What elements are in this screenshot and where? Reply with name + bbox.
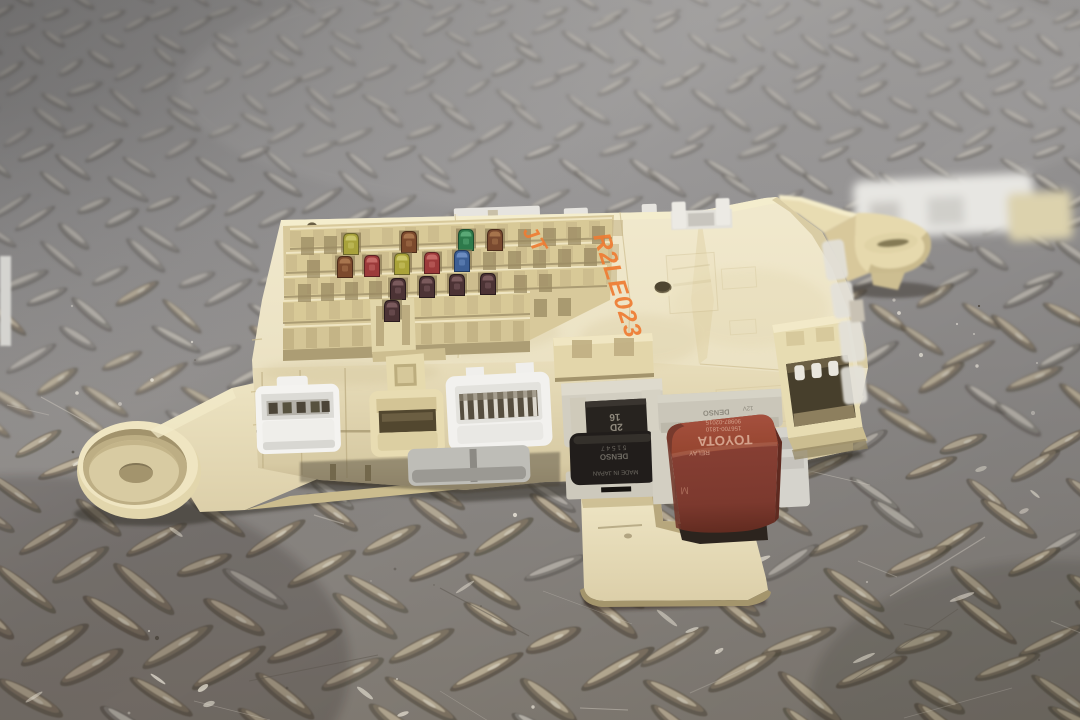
svg-text:TOYOTA: TOYOTA [697, 432, 753, 449]
svg-text:12V: 12V [743, 404, 754, 411]
svg-text:RELAY: RELAY [688, 448, 710, 456]
svg-text:16: 16 [609, 411, 621, 423]
svg-text:90987-02015: 90987-02015 [705, 417, 741, 424]
svg-text:156700-1810: 156700-1810 [705, 424, 741, 431]
svg-text:DENSO: DENSO [600, 451, 629, 461]
svg-text:M: M [680, 484, 689, 495]
svg-text:DENSO: DENSO [703, 407, 730, 417]
svg-text:5 1 5 4 7: 5 1 5 4 7 [601, 443, 627, 451]
svg-text:2D: 2D [610, 421, 623, 433]
